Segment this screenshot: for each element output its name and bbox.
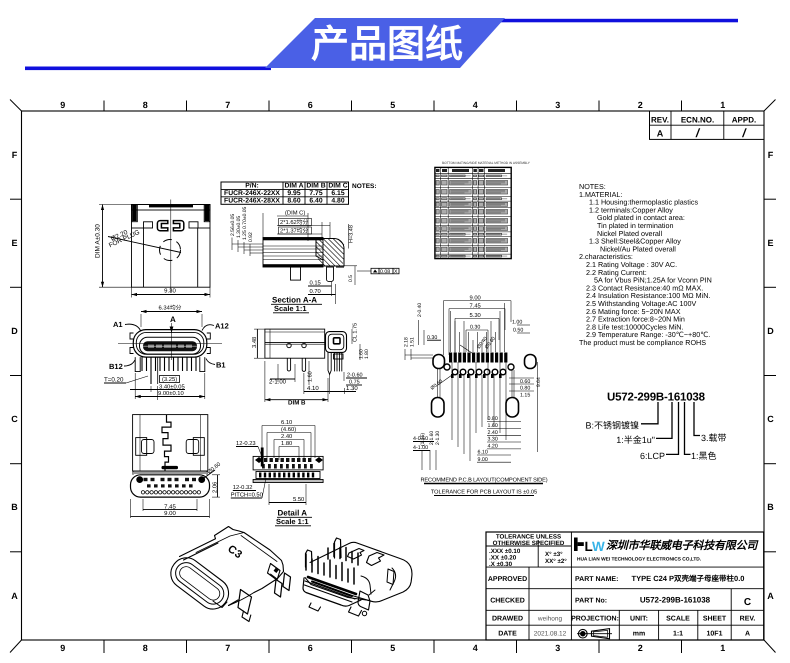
svg-text:PROJECTION:: PROJECTION: [571,616,619,623]
svg-text:Scale 1:1: Scale 1:1 [276,517,309,526]
svg-text:A: A [767,591,774,601]
svg-text:U572-299B-161038: U572-299B-161038 [607,392,706,404]
svg-text:PART NAME:: PART NAME: [575,576,618,583]
svg-text:B: B [767,502,774,512]
svg-text:1.51: 1.51 [410,337,416,347]
svg-text:U572-299B-161038: U572-299B-161038 [640,596,711,605]
svg-text:D: D [11,326,18,336]
svg-text:C: C [767,414,774,424]
svg-text:TOLERANCE FOR PCB LAYOUT IS ±0: TOLERANCE FOR PCB LAYOUT IS ±0.05 [431,490,537,496]
svg-text:3.载带: 3.载带 [701,433,727,443]
svg-text:9.00: 9.00 [164,510,176,517]
svg-text:ECN.NO.: ECN.NO. [681,116,714,125]
svg-text:0.15: 0.15 [310,280,321,287]
svg-text:9.00: 9.00 [478,457,488,463]
svg-text:3.40±0.05: 3.40±0.05 [159,383,185,390]
svg-text:FUCR-246X-28XX: FUCR-246X-28XX [224,198,280,205]
svg-text:0.70: 0.70 [310,288,321,295]
svg-text:The product must be compli: The product must be compliance ROHS [579,338,706,347]
svg-text:E: E [767,238,773,248]
svg-text:2-0.60: 2-0.60 [347,373,363,379]
svg-text:X: X [394,269,398,275]
svg-text:4: 4 [473,643,478,653]
svg-text:T=0.20: T=0.20 [104,377,124,384]
svg-text:A: A [11,591,18,601]
svg-text:F: F [12,150,18,160]
svg-text:0.80: 0.80 [520,386,530,392]
svg-text:B:不锈钢镀镍: B:不锈钢镀镍 [585,421,639,431]
svg-text:9.95: 9.95 [287,190,300,197]
svg-text:0.50: 0.50 [513,328,523,334]
svg-text:OTHERWISE SPECIFIED: OTHERWISE SPECIFIED [493,540,565,547]
svg-text:4.80: 4.80 [331,198,344,205]
svg-text:4.10: 4.10 [307,385,319,392]
svg-text:A: A [170,315,176,324]
svg-text:9.64: 9.64 [536,377,542,387]
svg-text:F: F [768,150,774,160]
svg-text:A: A [745,631,750,638]
svg-text:B: B [11,502,18,512]
svg-text:2.40: 2.40 [488,430,498,436]
svg-text:1.80: 1.80 [281,440,292,447]
svg-text:1.00: 1.00 [512,320,522,326]
svg-text:3.48: 3.48 [251,337,258,348]
svg-text:2021.08.12: 2021.08.12 [534,631,567,638]
svg-text:CL 1.75: CL 1.75 [353,323,359,342]
svg-text:DATE: DATE [498,631,517,638]
svg-text:1.80: 1.80 [364,349,370,359]
svg-text:A12: A12 [215,322,229,331]
svg-text:1:1: 1:1 [673,631,683,638]
svg-text:3: 3 [555,100,560,110]
svg-text:5.30: 5.30 [470,312,481,319]
svg-text:RECOMMEND P.C.B LAYOUT(COMPONE: RECOMMEND P.C.B LAYOUT(COMPONENT SIDE) [420,477,547,484]
svg-text:10F1: 10F1 [707,631,723,638]
svg-text:1.60: 1.60 [488,423,498,429]
svg-text:B1: B1 [216,361,226,370]
svg-text:4.20: 4.20 [488,444,498,450]
svg-text:8: 8 [143,100,148,110]
svg-text:产品图纸: 产品图纸 [311,24,463,66]
svg-text:APPROVED: APPROVED [488,576,527,583]
svg-text:XX° ±2°: XX° ±2° [545,558,567,565]
svg-text:C: C [11,414,18,424]
svg-text:1: 1 [720,100,725,110]
svg-text:(4.60): (4.60) [281,426,296,433]
svg-text:HUA LIAN WEI TECHNOLOGY ELECTR: HUA LIAN WEI TECHNOLOGY ELECTRONICS CO,L… [577,557,701,563]
svg-text:A1: A1 [113,320,123,329]
svg-text:4: 4 [473,100,478,110]
svg-text:DIM A±0.30: DIM A±0.30 [95,224,102,258]
svg-text:PITCH=0.50: PITCH=0.50 [231,492,263,499]
svg-text:9.30: 9.30 [164,288,176,295]
svg-text:深圳市华联威电子科技有限公司: 深圳市华联威电子科技有限公司 [606,539,759,552]
svg-text:1.15: 1.15 [520,392,530,398]
svg-text:3.30: 3.30 [488,437,498,443]
svg-text:1: 1 [720,643,725,653]
svg-text:0.5: 0.5 [348,275,354,282]
svg-text:6: 6 [308,100,313,110]
svg-text:7.75: 7.75 [309,190,322,197]
svg-text:1.60: 1.60 [308,371,314,382]
svg-text:(3.25): (3.25) [162,376,177,383]
svg-text:2-0.40: 2-0.40 [417,303,423,317]
svg-text:NOTES:: NOTES: [352,183,377,190]
svg-text:5.50: 5.50 [293,496,304,503]
svg-text:APPD.: APPD. [732,116,756,125]
svg-text:0.80: 0.80 [488,416,498,422]
svg-text:8: 8 [143,643,148,653]
svg-text:9: 9 [60,100,65,110]
svg-text:TYPE C24 P双壳端子母座带柱0.0: TYPE C24 P双壳端子母座带柱0.0 [632,574,745,583]
svg-text:5: 5 [390,100,395,110]
svg-text:9.00±0.10: 9.00±0.10 [158,390,184,397]
svg-text:REV.: REV. [740,616,756,623]
svg-text:6:LCP: 6:LCP [640,451,665,461]
svg-text:2: 2 [638,100,643,110]
svg-text:UNIT:: UNIT: [630,616,648,623]
svg-text:D: D [767,326,774,336]
svg-text:.X ±0.30: .X ±0.30 [489,561,513,568]
svg-text:2.06: 2.06 [211,482,218,493]
svg-text:BOTTOM MATING/SIDE MATERIAL ME: BOTTOM MATING/SIDE MATERIAL METHOD IN AS… [442,161,531,165]
svg-text:X° ±3°: X° ±3° [545,551,563,558]
svg-text:SCALE: SCALE [666,616,690,623]
svg-text:3: 3 [555,643,560,653]
svg-text:1:半金1u": 1:半金1u" [616,435,655,445]
svg-text:6.10: 6.10 [281,419,292,426]
svg-text:SHEET: SHEET [703,616,727,623]
svg-text:2-1.30: 2-1.30 [435,431,441,445]
svg-text:6: 6 [308,643,313,653]
svg-text:REV.: REV. [651,116,669,125]
svg-text:DIM C: DIM C [328,183,347,190]
svg-text:E: E [11,238,17,248]
svg-text:0.92: 0.92 [248,232,254,242]
svg-text:DIM B: DIM B [306,183,325,190]
svg-text:7.45: 7.45 [470,303,481,309]
svg-text:weihong: weihong [537,616,563,623]
svg-text:0.75: 0.75 [349,380,360,386]
svg-text:7: 7 [225,643,230,653]
svg-text:(DIM C): (DIM C) [285,210,305,217]
svg-text:6.34均分: 6.34均分 [159,305,182,312]
svg-text:DIM A: DIM A [284,183,303,190]
svg-text:mm: mm [633,631,645,638]
svg-text:2.40: 2.40 [281,433,292,440]
svg-text:7: 7 [225,100,230,110]
svg-text:1.30: 1.30 [346,385,358,392]
svg-text:2-1.00: 2-1.00 [269,379,287,386]
svg-text:A: A [657,129,664,139]
svg-text:W: W [592,539,605,554]
svg-text:5: 5 [390,643,395,653]
svg-text:2*1.37均分: 2*1.37均分 [280,228,309,235]
svg-text:6.10: 6.10 [478,450,488,456]
svg-text:PART No:: PART No: [575,598,607,605]
svg-text:8.60: 8.60 [287,198,300,205]
svg-text:9: 9 [60,643,65,653]
svg-text:6.15: 6.15 [331,190,344,197]
svg-text:12-0.23: 12-0.23 [236,440,256,447]
svg-text:9.00: 9.00 [470,294,481,301]
svg-text:C: C [744,597,751,608]
svg-text:H=3.48: H=3.48 [349,225,355,243]
svg-text:FUCR-246X-22XX: FUCR-246X-22XX [224,190,280,197]
svg-text:P/N:: P/N: [245,183,259,190]
svg-text:CHECKED: CHECKED [490,598,525,605]
svg-text:0.30: 0.30 [470,325,480,331]
svg-text:B12: B12 [109,362,123,371]
svg-text:0.60: 0.60 [520,379,530,385]
svg-text:6.40: 6.40 [309,198,322,205]
svg-text:DRAWED: DRAWED [492,616,523,623]
svg-text:2: 2 [638,643,643,653]
svg-text:2*1.62均分: 2*1.62均分 [280,219,309,226]
svg-text:0.08: 0.08 [380,269,390,275]
svg-text:12-0.32: 12-0.32 [233,484,253,491]
svg-text:1:黑色: 1:黑色 [691,451,717,461]
svg-text:DIM B: DIM B [288,400,306,407]
svg-text:Scale 1:1: Scale 1:1 [274,304,307,313]
svg-text:7.45: 7.45 [164,503,176,510]
